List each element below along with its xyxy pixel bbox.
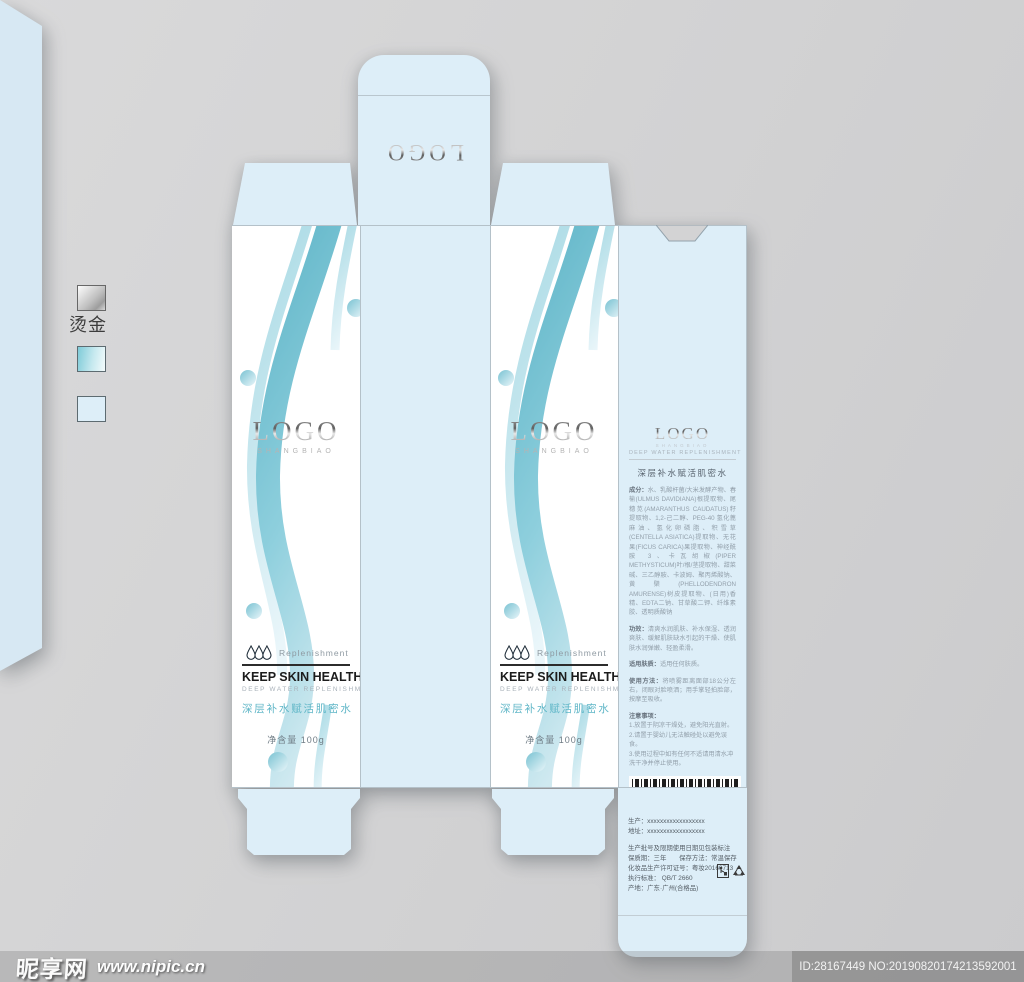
note-item: 1.放置于阴凉干燥处，避免阳光直射。 [629,721,736,730]
batch-note-line: 生产批号及限期使用日期见包装标注 [628,844,742,854]
shelf-life-line: 保质期：三年 保存方法：常温保存 [628,854,742,864]
packaging-icons [717,864,746,878]
back-claims: Replenishment KEEP SKIN HEALTHY DEEP WAT… [500,645,608,716]
divider-rule [242,664,350,666]
glue-flap [0,0,42,671]
top-tuck-flap: LOGO [358,55,490,225]
notes-paragraph: 注意事项： 1.放置于阴凉干燥处，避免阳光直射。 2.请置于婴幼儿无法触碰处以避… [629,712,736,769]
brand-logo-sub: SHANGBIAO [232,448,360,455]
note-item: 3.使用过程中如有任何不适请用清水冲洗干净并停止使用。 [629,750,736,769]
bottom-tuck-flap-left [238,789,360,855]
replenishment-label: Replenishment [279,648,349,658]
fold-line [618,225,619,787]
net-weight: 净含量 100g [490,733,618,746]
note-item: 2.请置于婴幼儿无法触碰处以避免误食。 [629,731,736,750]
usage-paragraph: 使用方法：将喷雾距离面部18公分左右，闭眼对脸喷洒；用手掌轻拍脸部，按摩至吸收。 [629,677,736,705]
efficacy-paragraph: 功效：清爽水润肌肤、补水保湿、透润爽肤、缓解肌肤缺水引起的干燥、使肌肤水润弹嫩、… [629,625,736,653]
recycle-icon [732,864,746,878]
water-drops-icon [502,645,532,661]
replenishment-label: Replenishment [537,648,607,658]
brand-logo-block: LOGO SHANGBIAO [490,418,618,455]
barcode: 6 924907 522912 [629,776,741,787]
notes-title: 注意事项： [629,713,660,720]
fold-line [746,225,747,787]
thumb-notch [656,225,708,242]
box-dieline: LOGO LOGO SHANGBIAO [0,0,1024,982]
barcode-bars [632,779,738,787]
skin-type-label: 适用肤质： [629,661,660,668]
panel-back: LOGO SHANGBIAO Replenishment KEEP SKIN H… [490,225,618,787]
fold-line [618,915,747,916]
production-flap: 生产：xxxxxxxxxxxxxxxxxx 地址：xxxxxxxxxxxxxxx… [618,787,747,957]
info-logo-block: LOGO SHANGBIAO [629,425,736,448]
address-line: 地址：xxxxxxxxxxxxxxxxxx [628,827,742,837]
skin-type-paragraph: 适用肤质：适用任何肤质。 [629,660,736,669]
panel-info: LOGO SHANGBIAO DEEP WATER REPLENISHMENT … [618,225,747,787]
usage-label: 使用方法： [629,678,662,685]
subheadline: DEEP WATER REPLENISHMENT [242,686,350,693]
skin-type-text: 适用任何肤质。 [660,661,703,668]
dust-flap-left [233,163,357,225]
fold-line [232,787,747,788]
product-name-cn: 深层补水赋活肌密水 [242,701,350,716]
info-product-name-cn: 深层补水赋活肌密水 [629,467,736,479]
producer-line: 生产：xxxxxxxxxxxxxxxxxx [628,817,742,827]
info-subheadline: DEEP WATER REPLENISHMENT [629,450,736,460]
fold-line [358,95,490,96]
design-canvas: 烫金 LOGO LOGO SHANGBIAO [0,0,1024,982]
brand-logo: LOGO [629,425,736,442]
image-id-badge: ID:28167449 NO:20190820174213592001 [792,951,1024,982]
watermark-bar: 昵享网 www.nipic.cn ID:28167449 NO:20190820… [0,951,1024,982]
tidyman-icon [717,864,729,878]
product-name-cn: 深层补水赋活肌密水 [500,701,608,716]
ingredients-label: 成分： [629,487,648,494]
brand-logo-sub: SHANGBIAO [629,443,736,448]
front-claims: Replenishment KEEP SKIN HEALTHY DEEP WAT… [242,645,350,716]
production-info: 生产：xxxxxxxxxxxxxxxxxx 地址：xxxxxxxxxxxxxxx… [628,817,742,893]
headline: KEEP SKIN HEALTHY [242,670,350,684]
brand-logo: LOGO [232,418,360,445]
dust-flap-right [491,163,615,225]
fold-line [490,225,491,787]
net-weight: 净含量 100g [232,733,360,746]
subheadline: DEEP WATER REPLENISHMENT [500,686,608,693]
site-url: www.nipic.cn [97,957,205,977]
origin-line: 产地：广东·广州(合格品) [628,884,742,894]
panel-side-plain [360,225,490,787]
ingredients-text: 水、乳酸杆菌/大米发酵产物、春榆(ULMUS DAVIDIANA)根提取物、尾穗… [629,487,736,616]
top-flap-logo: LOGO [358,139,490,165]
site-logo: 昵享网 [15,950,89,982]
ingredients-paragraph: 成分：水、乳酸杆菌/大米发酵产物、春榆(ULMUS DAVIDIANA)根提取物… [629,486,736,618]
bottom-tuck-flap-right [492,789,614,855]
brand-logo-block: LOGO SHANGBIAO [232,418,360,455]
fold-line [360,225,361,787]
efficacy-label: 功效： [629,626,648,633]
brand-logo-sub: SHANGBIAO [490,448,618,455]
panel-front: LOGO SHANGBIAO Replenishment KEEP SKIN H… [232,225,360,787]
headline: KEEP SKIN HEALTHY [500,670,608,684]
water-drops-icon [244,645,274,661]
divider-rule [500,664,608,666]
brand-logo: LOGO [490,418,618,445]
